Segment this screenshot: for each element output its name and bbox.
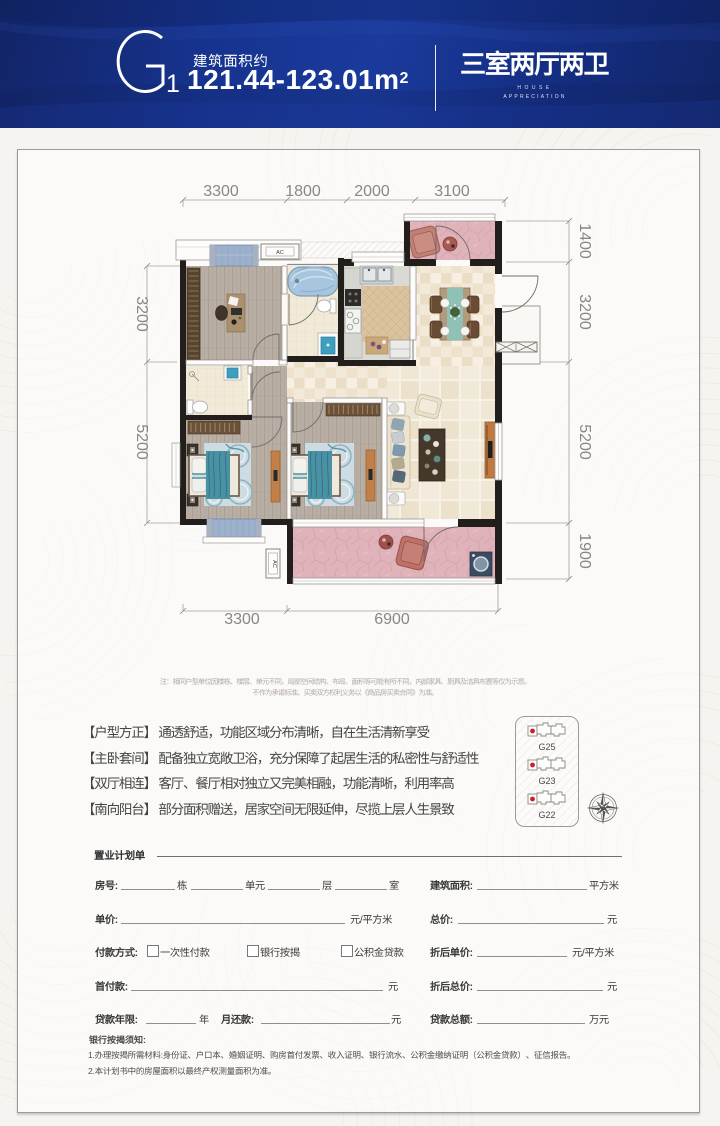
svg-text:3200: 3200 <box>132 296 156 332</box>
svg-text:2000: 2000 <box>354 183 390 201</box>
svg-text:G22: G22 <box>538 808 555 821</box>
svg-text:3200: 3200 <box>575 294 596 330</box>
svg-text:5200: 5200 <box>575 424 596 460</box>
svg-text:G23: G23 <box>538 774 555 787</box>
svg-text:1800: 1800 <box>285 183 321 201</box>
svg-text:5200: 5200 <box>132 424 156 460</box>
svg-text:3300: 3300 <box>224 605 260 629</box>
svg-text:AC: AC <box>271 560 279 568</box>
svg-text:6900: 6900 <box>374 605 410 629</box>
svg-text:3100: 3100 <box>434 183 470 201</box>
svg-text:1400: 1400 <box>575 223 596 259</box>
svg-text:1900: 1900 <box>575 533 596 569</box>
svg-text:3300: 3300 <box>203 183 239 201</box>
svg-text:AC: AC <box>276 248 284 256</box>
svg-text:G25: G25 <box>538 740 555 753</box>
svg-text:1: 1 <box>166 64 180 100</box>
